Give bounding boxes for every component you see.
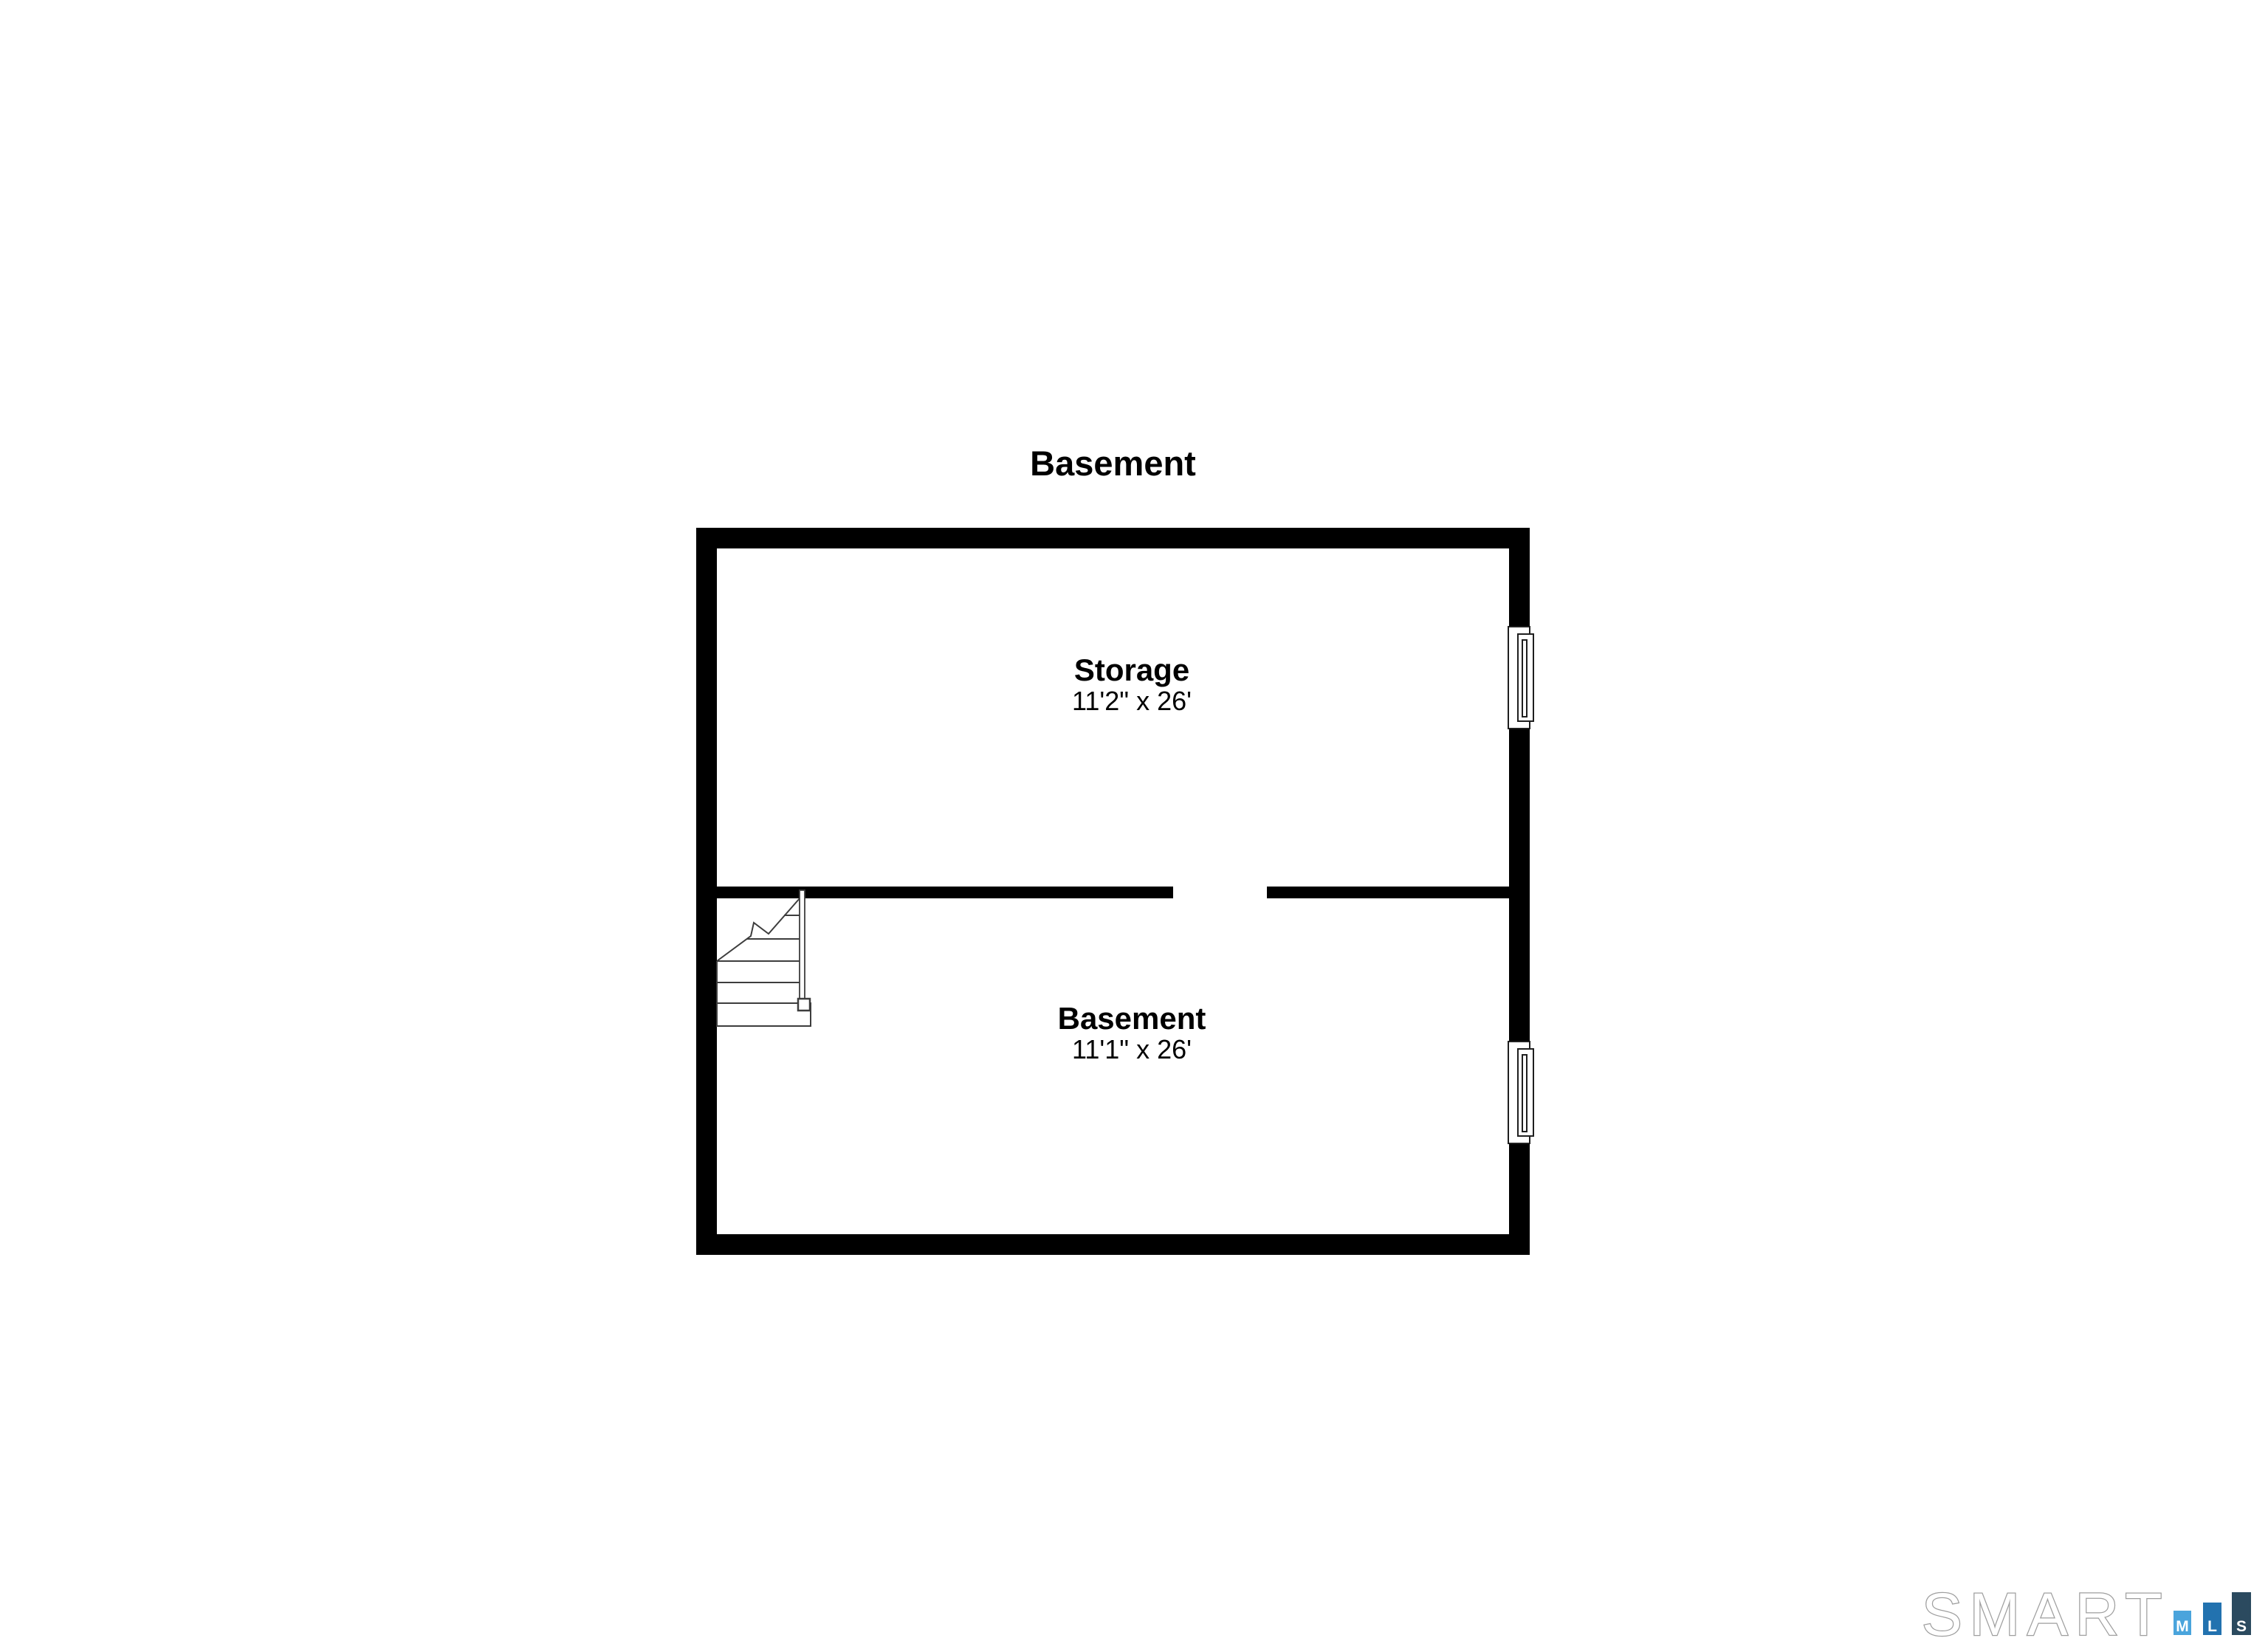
top-wall: [696, 528, 1530, 548]
room-label-storage: Storage 11'2" x 26': [873, 654, 1390, 716]
floor-plan-drawing: [0, 0, 2268, 1652]
basement-window-icon: [1508, 1042, 1533, 1143]
bottom-wall: [696, 1234, 1530, 1255]
mls-letter-s: S: [2236, 1618, 2247, 1635]
mls-letter-l: L: [2207, 1618, 2217, 1635]
basement-room-dimensions: 11'1" x 26': [873, 1035, 1390, 1064]
right-wall-middle-segment: [1509, 729, 1530, 1042]
basement-room-name: Basement: [873, 1002, 1390, 1035]
storage-window-icon: [1508, 627, 1533, 729]
floor-plan-page: Basement: [0, 0, 2268, 1652]
storage-room-dimensions: 11'2" x 26': [873, 686, 1390, 716]
right-wall-lower-segment: [1509, 1143, 1530, 1255]
walls: [696, 528, 1530, 1255]
interior-wall-right-of-doorway: [1267, 887, 1510, 898]
left-wall: [696, 528, 717, 1255]
right-wall-upper-segment: [1509, 528, 1530, 627]
interior-wall-left-of-doorway: [715, 887, 1173, 898]
mls-letter-m: M: [2176, 1618, 2189, 1635]
smart-wordmark: SMART: [1922, 1581, 2170, 1648]
storage-room-name: Storage: [873, 654, 1390, 686]
smartmls-logo: SMART M L S: [1905, 1580, 2268, 1652]
stairs-icon: [717, 890, 811, 1026]
room-label-basement: Basement 11'1" x 26': [873, 1002, 1390, 1064]
